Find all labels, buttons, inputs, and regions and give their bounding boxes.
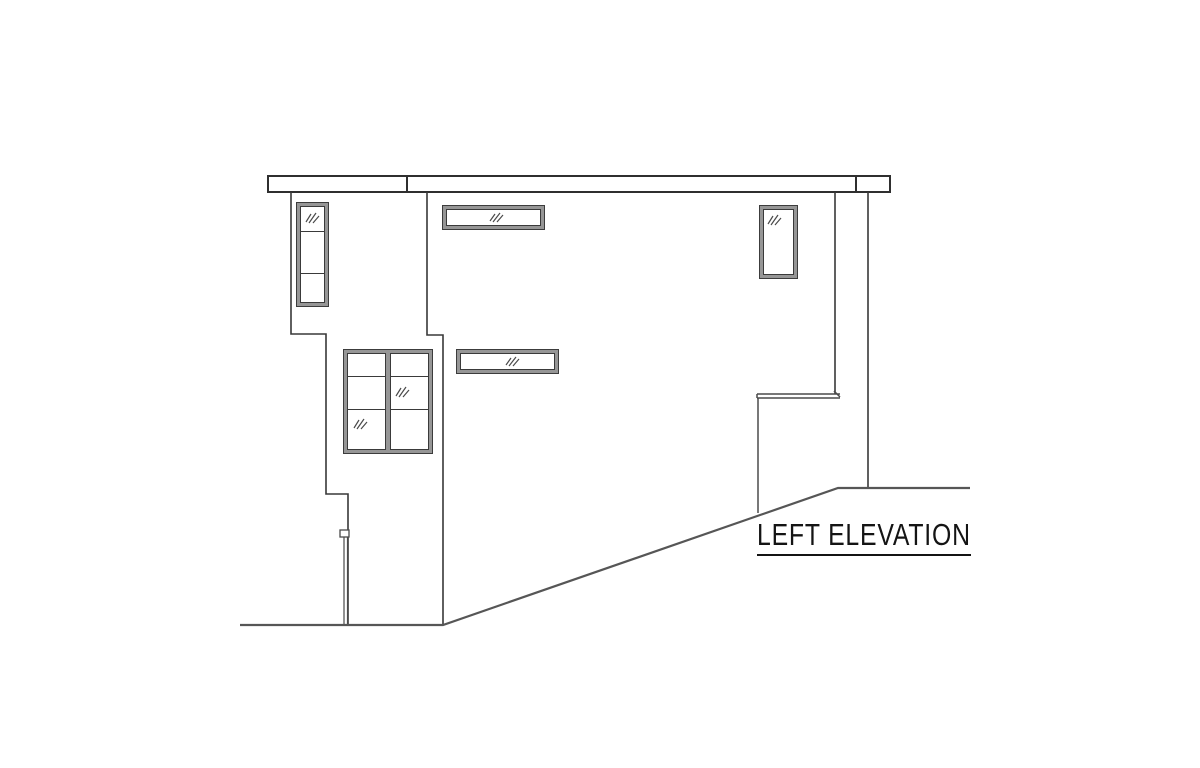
fascia-band-outline (268, 176, 890, 192)
grid-window (344, 350, 432, 453)
roof-fascia-band (268, 176, 890, 192)
grade-line (240, 488, 970, 625)
patio-wall-cap (757, 391, 840, 398)
right-vertical-window-glass (763, 209, 794, 275)
mid-strip-window-glass (460, 353, 555, 370)
elevation-linework (0, 0, 1200, 768)
downspout-bracket (340, 530, 349, 537)
right-vertical-window (760, 206, 797, 278)
upper-strip-window (443, 206, 544, 229)
grid-window-mullion (385, 353, 391, 450)
drawing-title-block: LEFT ELEVATION (757, 519, 971, 556)
mid-strip-window (457, 350, 558, 373)
tall-left-window (297, 203, 328, 306)
upper-strip-window-glass (446, 209, 541, 226)
tall-left-window-divider-1 (300, 231, 325, 232)
drawing-title-underline (757, 554, 971, 556)
drawing-title: LEFT ELEVATION (757, 519, 928, 550)
tall-left-window-divider-2 (300, 273, 325, 274)
elevation-canvas: LEFT ELEVATION (0, 0, 1200, 768)
tall-left-window-glass (300, 206, 325, 303)
